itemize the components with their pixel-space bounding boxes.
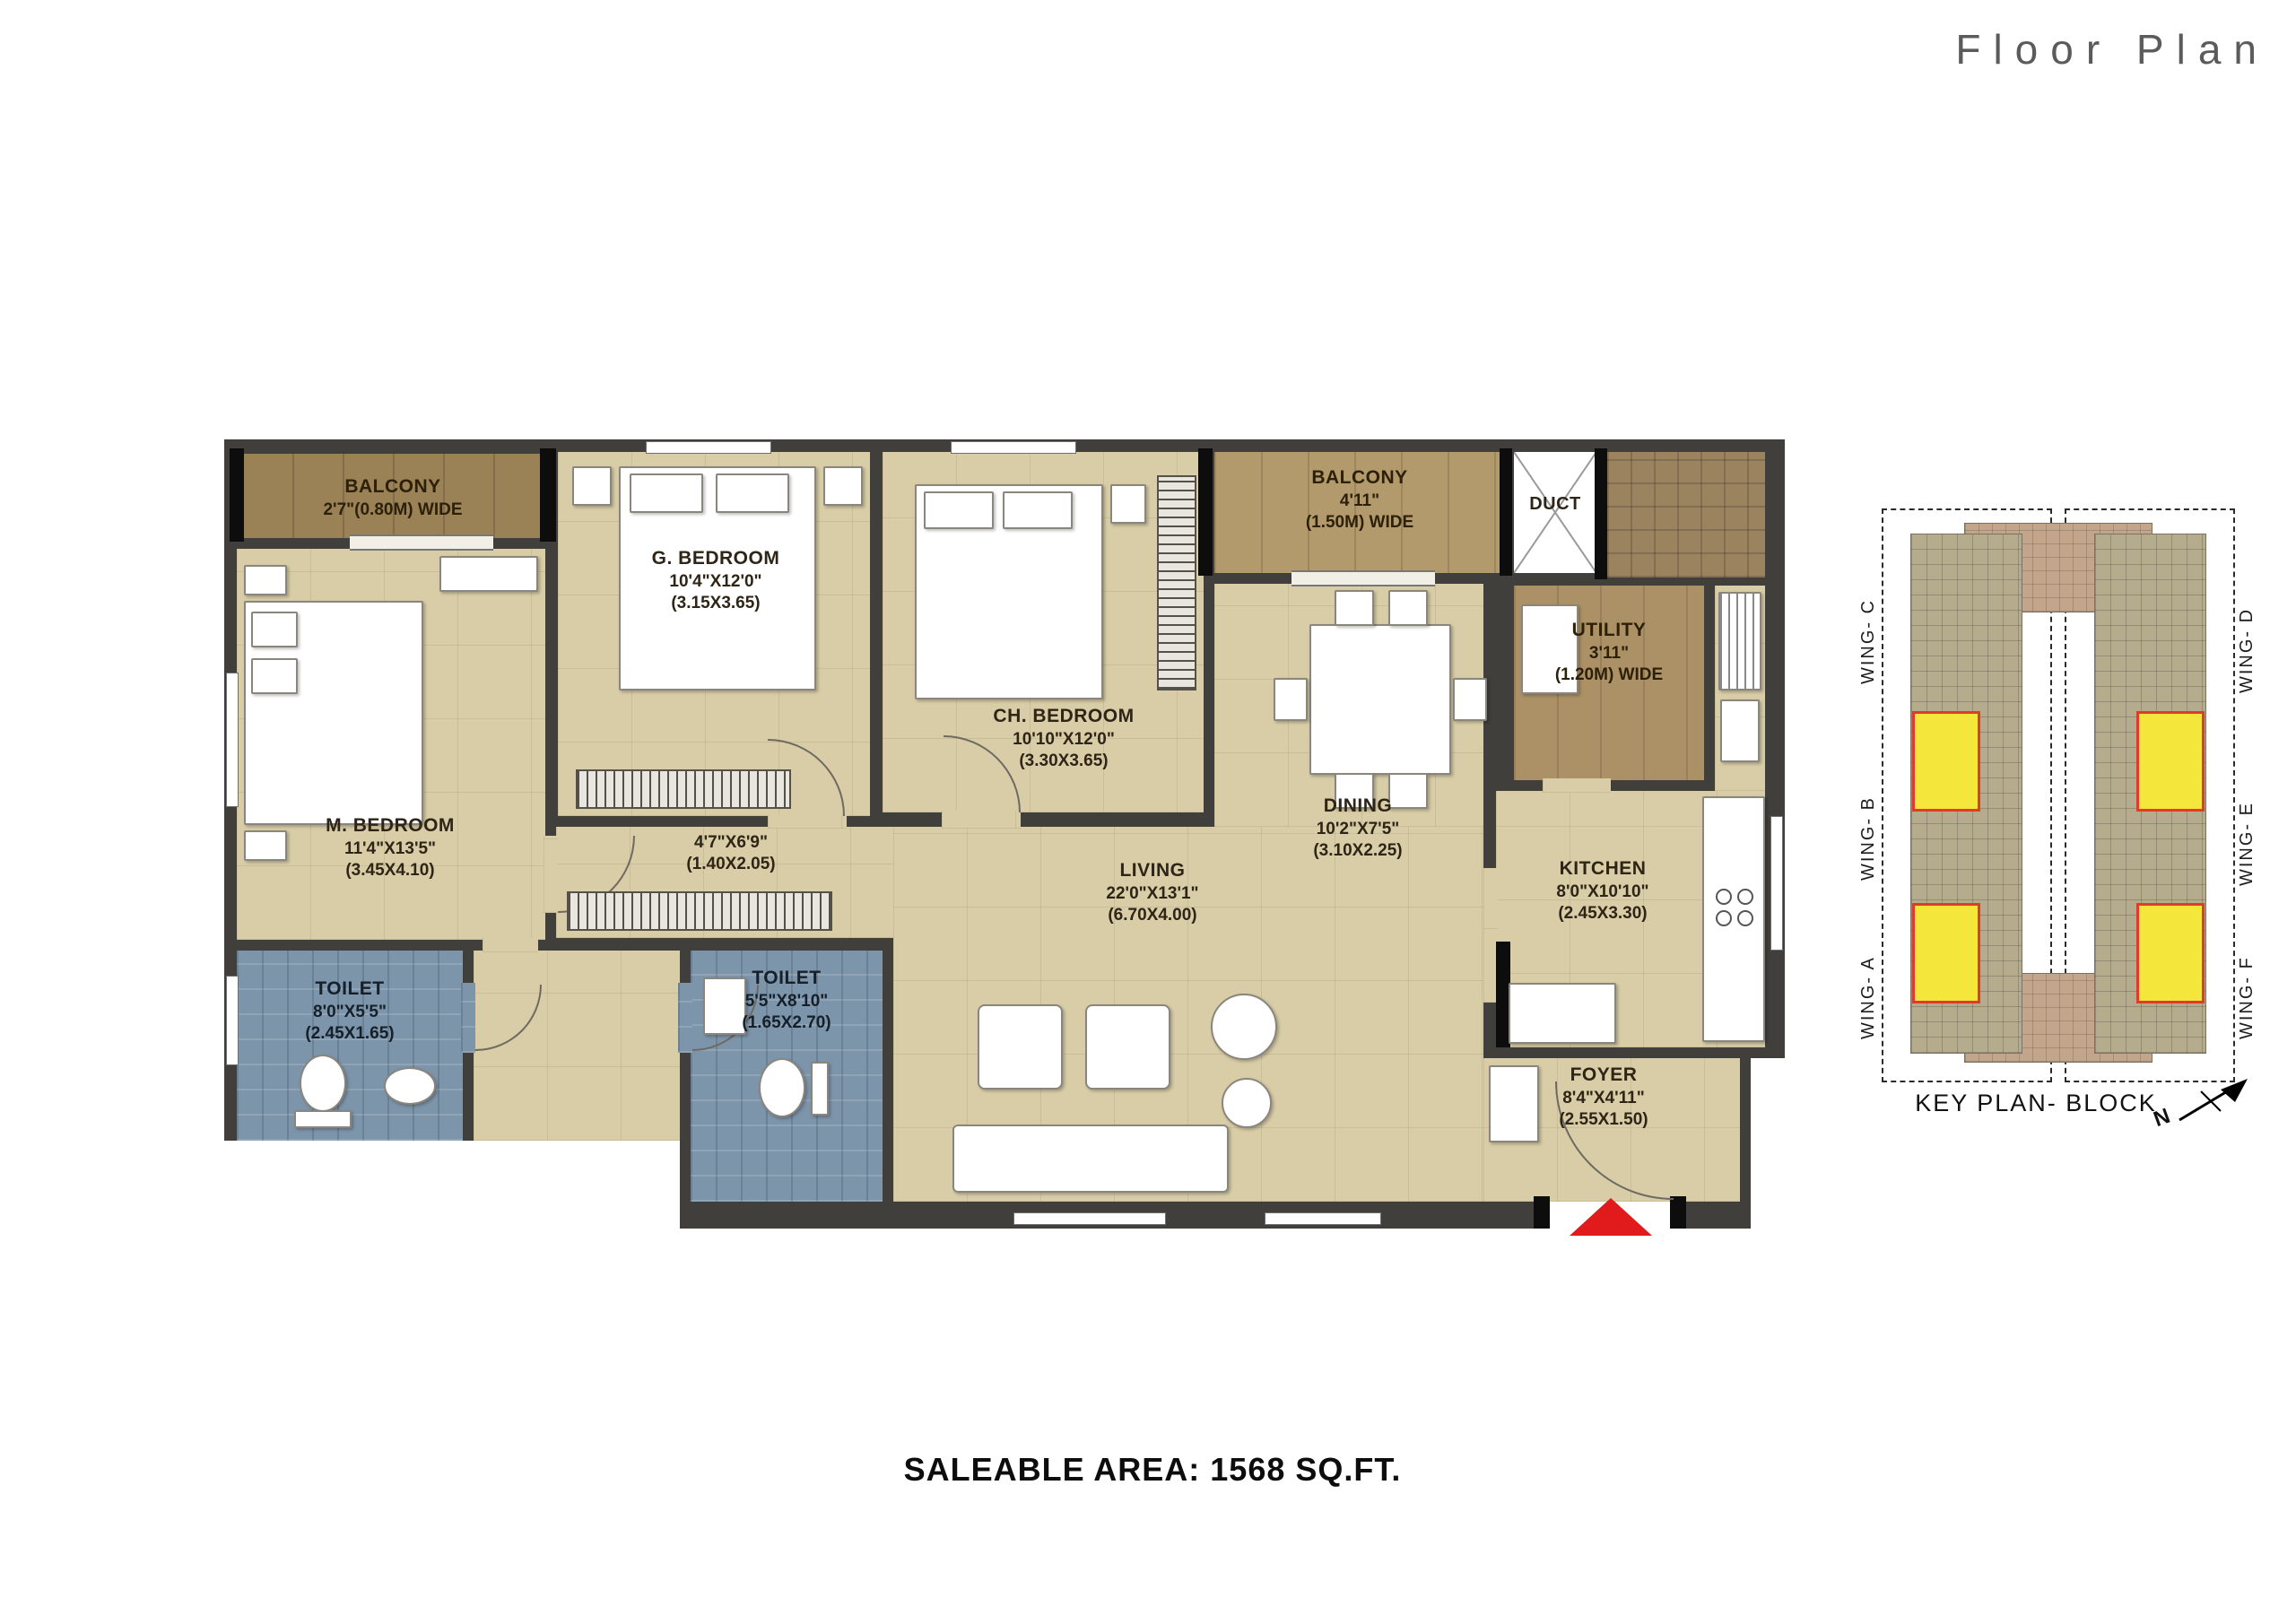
wardrobe-icon bbox=[576, 769, 791, 809]
foyer-label: FOYER 8'4"X4'11" (2.55X1.50) bbox=[1478, 1064, 1729, 1132]
sliding-door bbox=[1291, 570, 1435, 586]
utility-label: UTILITY 3'11" (1.20M) WIDE bbox=[1518, 619, 1700, 687]
kitchen-label: KITCHEN 8'0"X10'10" (2.45X3.30) bbox=[1500, 857, 1706, 925]
door-opening bbox=[544, 836, 558, 913]
chair bbox=[1388, 590, 1428, 626]
pillow bbox=[251, 612, 298, 647]
wing-b-label: WING- B bbox=[1858, 758, 1879, 919]
wall-accent bbox=[1595, 448, 1607, 579]
dining-table bbox=[1309, 624, 1451, 775]
wardrobe-icon bbox=[1157, 475, 1196, 690]
pillow bbox=[1003, 491, 1073, 529]
g-bedroom-label: G. BEDROOM 10'4"X12'0" (3.15X3.65) bbox=[581, 547, 850, 615]
highlighted-flat bbox=[1912, 711, 1980, 812]
window bbox=[1770, 816, 1783, 951]
room-dressing bbox=[474, 951, 680, 1141]
chair bbox=[1453, 678, 1487, 721]
side-table bbox=[1110, 484, 1146, 524]
sink-icon bbox=[1720, 699, 1760, 762]
toilet-left-label: TOILET 8'0"X5'5" (2.45X1.65) bbox=[246, 977, 454, 1046]
wing-a-label: WING- A bbox=[1858, 926, 1879, 1070]
floor-plan: BALCONY 2'7"(0.80M) WIDE M. BEDROOM 11'4… bbox=[224, 439, 1785, 1229]
wall-accent bbox=[1670, 1196, 1686, 1229]
wall-accent bbox=[1500, 448, 1512, 576]
kitchen-counter bbox=[1509, 983, 1616, 1044]
wc-icon bbox=[300, 1055, 346, 1112]
wall-accent bbox=[1198, 448, 1213, 576]
wing-e-label: WING- E bbox=[2237, 763, 2257, 925]
entrance-arrow-icon bbox=[1570, 1198, 1652, 1236]
highlighted-flat bbox=[2136, 711, 2205, 812]
key-plan: WING- C WING- B WING- A WING- D WING- E … bbox=[1865, 498, 2251, 1125]
pillow bbox=[716, 473, 789, 513]
armchair bbox=[1085, 1004, 1170, 1090]
duct-label: DUCT bbox=[1514, 493, 1596, 517]
wc-icon bbox=[759, 1058, 805, 1117]
pillow bbox=[924, 491, 994, 529]
wing-f-label: WING- F bbox=[2237, 926, 2257, 1070]
dish-rack-icon bbox=[1718, 592, 1761, 690]
window bbox=[1013, 1212, 1166, 1225]
chair bbox=[1335, 590, 1374, 626]
m-bedroom-label: M. BEDROOM 11'4"X13'5" (3.45X4.10) bbox=[251, 814, 529, 882]
door-opening bbox=[461, 983, 475, 1053]
wall-accent bbox=[1534, 1196, 1550, 1229]
pillow bbox=[630, 473, 703, 513]
side-table bbox=[823, 466, 863, 506]
pillow bbox=[251, 658, 298, 694]
window bbox=[226, 976, 239, 1065]
chair bbox=[1274, 678, 1308, 721]
wc-cistern bbox=[811, 1062, 829, 1116]
room-service-ledge bbox=[1607, 452, 1765, 578]
balcony-right-label: BALCONY 4'11" (1.50M) WIDE bbox=[1259, 466, 1460, 534]
page-title: Floor Plan bbox=[1848, 25, 2269, 88]
highlighted-flat bbox=[1912, 903, 1980, 1003]
ch-bedroom-label: CH. BEDROOM 10'10"X12'0" (3.30X3.65) bbox=[931, 705, 1196, 773]
side-table bbox=[572, 466, 612, 506]
window bbox=[1265, 1212, 1381, 1225]
sofa bbox=[952, 1125, 1229, 1193]
window bbox=[646, 441, 771, 454]
sliding-door bbox=[350, 534, 493, 551]
highlighted-flat bbox=[2136, 903, 2205, 1003]
saleable-area-text: SALEABLE AREA: 1568 SQ.FT. bbox=[570, 1451, 1735, 1489]
wardrobe-icon bbox=[567, 891, 832, 931]
wc-cistern bbox=[294, 1110, 352, 1128]
key-plan-title: KEY PLAN- BLOCK bbox=[1901, 1090, 2170, 1117]
washbasin-icon bbox=[384, 1067, 436, 1105]
door-opening bbox=[1543, 778, 1611, 793]
exterior-cutout bbox=[1751, 1058, 1785, 1229]
north-arrow-icon bbox=[2174, 1072, 2255, 1133]
dining-label: DINING 10'2"X7'5" (3.10X2.25) bbox=[1232, 795, 1483, 863]
round-table bbox=[1222, 1078, 1272, 1128]
balcony-left-label: BALCONY 2'7"(0.80M) WIDE bbox=[242, 475, 544, 521]
toilet-bottom-label: TOILET 5'5"X8'10" (1.65X2.70) bbox=[692, 967, 881, 1035]
wing-d-label: WING- D bbox=[2237, 560, 2257, 740]
hob-icon bbox=[1711, 884, 1756, 929]
door-opening bbox=[768, 814, 847, 829]
side-table bbox=[244, 565, 287, 595]
window bbox=[951, 441, 1076, 454]
round-table bbox=[1211, 994, 1277, 1060]
door-opening bbox=[483, 938, 538, 952]
exterior-cutout bbox=[224, 1141, 680, 1229]
door-opening bbox=[678, 983, 692, 1053]
window bbox=[226, 673, 239, 807]
dresser bbox=[439, 556, 538, 592]
door-opening bbox=[942, 811, 1021, 829]
wing-c-label: WING- C bbox=[1858, 551, 1879, 731]
living-label: LIVING 22'0"X13'1" (6.70X4.00) bbox=[1031, 859, 1274, 927]
armchair bbox=[978, 1004, 1063, 1090]
passage-label: 4'7"X6'9" (1.40X2.05) bbox=[583, 832, 879, 876]
